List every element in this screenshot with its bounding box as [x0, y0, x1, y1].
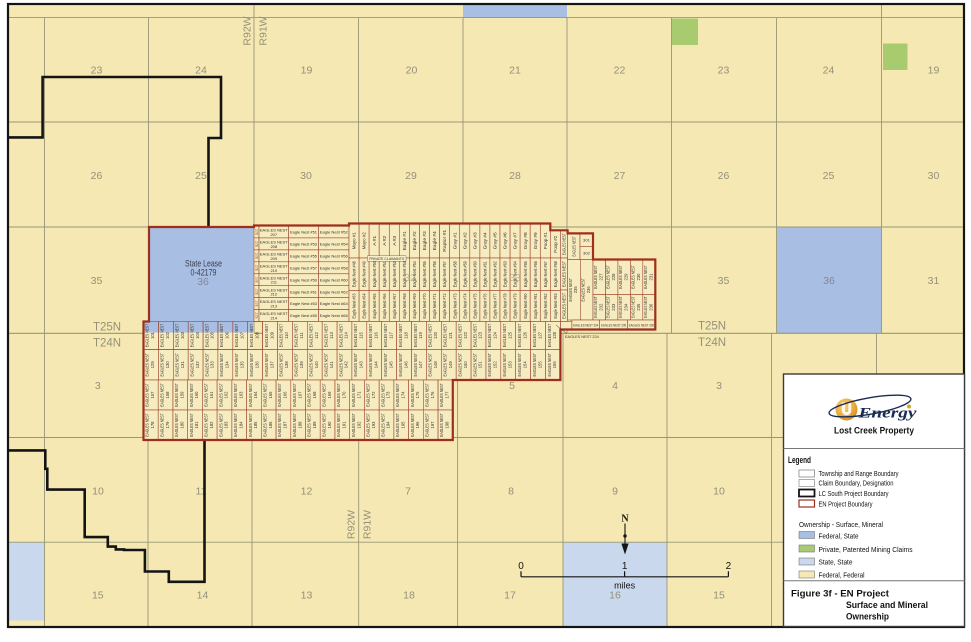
svg-text:EAGLES NEST: EAGLES NEST: [254, 301, 259, 307]
svg-text:EAGLES NEST: EAGLES NEST: [160, 323, 165, 347]
svg-text:110: 110: [284, 331, 289, 338]
svg-text:EAGLES NEST: EAGLES NEST: [264, 353, 269, 377]
svg-text:31: 31: [928, 275, 940, 287]
svg-text:211: 211: [271, 280, 278, 285]
svg-text:119: 119: [418, 331, 423, 338]
svg-text:123: 123: [478, 331, 483, 339]
svg-text:152: 152: [493, 361, 498, 369]
svg-text:182: 182: [209, 421, 214, 429]
svg-text:103: 103: [180, 331, 185, 339]
svg-text:235: 235: [573, 286, 578, 294]
svg-text:Eagle Nest #64: Eagle Nest #64: [362, 293, 367, 319]
svg-text:Eagle Nest #81: Eagle Nest #81: [533, 293, 538, 319]
svg-text:Eagle Nest #63: Eagle Nest #63: [290, 301, 318, 306]
svg-text:Eagle Nest #60: Eagle Nest #60: [320, 277, 349, 282]
svg-text:EAGLES NEST: EAGLES NEST: [307, 413, 312, 437]
svg-text:EAGLES NEST: EAGLES NEST: [254, 241, 259, 247]
svg-text:109: 109: [269, 331, 274, 339]
svg-text:Federal, Federal: Federal, Federal: [819, 573, 865, 580]
svg-text:177: 177: [445, 391, 450, 399]
svg-text:Township and Range Boundary: Township and Range Boundary: [819, 471, 899, 478]
svg-text:151: 151: [478, 361, 483, 369]
svg-text:Eagle Nest #68: Eagle Nest #68: [402, 293, 407, 319]
svg-text:EAGLES NEST 205: EAGLES NEST 205: [601, 322, 627, 327]
svg-text:Eagle Nest #65: Eagle Nest #65: [523, 261, 528, 288]
svg-text:22: 22: [614, 65, 626, 77]
svg-text:EAGLES NEST: EAGLES NEST: [338, 353, 343, 377]
svg-text:Eagle Nest #78: Eagle Nest #78: [503, 293, 508, 319]
svg-text:EAGLES NEST 206: EAGLES NEST 206: [629, 322, 655, 327]
svg-text:Eagle Nest #65: Eagle Nest #65: [290, 313, 318, 318]
svg-text:140: 140: [314, 361, 319, 369]
svg-text:EAGLES NEST: EAGLES NEST: [218, 383, 223, 407]
svg-text:Poop #1: Poop #1: [543, 232, 548, 250]
svg-text:R91W: R91W: [258, 16, 270, 45]
svg-text:Mayo #1: Mayo #1: [352, 232, 357, 250]
svg-text:EAGLES NEST: EAGLES NEST: [413, 323, 418, 347]
svg-text:190: 190: [327, 421, 332, 429]
svg-text:Eagle Nest #53: Eagle Nest #53: [290, 242, 318, 247]
svg-text:Eagle Nest #56: Eagle Nest #56: [432, 261, 437, 288]
svg-text:183: 183: [224, 421, 229, 429]
svg-text:EAGLES NEST: EAGLES NEST: [472, 323, 477, 347]
svg-text:Eagle Nest #49: Eagle Nest #49: [362, 261, 367, 288]
svg-text:EAGLES NEST: EAGLES NEST: [410, 383, 415, 407]
svg-text:EAGLES NEST: EAGLES NEST: [457, 323, 462, 347]
svg-text:234: 234: [623, 303, 628, 311]
svg-text:EAGLES NEST: EAGLES NEST: [630, 265, 635, 289]
svg-text:Eagle Nest #77: Eagle Nest #77: [493, 293, 498, 319]
svg-text:191: 191: [342, 421, 347, 429]
svg-text:115: 115: [359, 331, 364, 338]
svg-text:EAGLES NEST: EAGLES NEST: [457, 353, 462, 377]
svg-text:229: 229: [623, 273, 628, 281]
svg-text:114: 114: [344, 331, 349, 338]
svg-text:26: 26: [718, 170, 730, 182]
svg-text:EAGLES NEST: EAGLES NEST: [398, 353, 403, 377]
svg-text:Eagle Nest #51: Eagle Nest #51: [290, 230, 318, 235]
svg-text:EAGLES NEST: EAGLES NEST: [443, 323, 448, 347]
svg-text:126: 126: [522, 331, 527, 339]
svg-text:A #1: A #1: [372, 235, 377, 246]
svg-text:EAGLES NEST: EAGLES NEST: [428, 353, 433, 377]
svg-text:EAGLES NEST: EAGLES NEST: [219, 323, 224, 347]
svg-text:EAGLES NEST: EAGLES NEST: [189, 413, 194, 437]
svg-text:158: 158: [165, 391, 170, 399]
svg-text:167: 167: [297, 391, 302, 399]
svg-text:2: 2: [726, 561, 732, 572]
svg-text:128: 128: [552, 331, 557, 339]
svg-text:EAGLES NEST 204: EAGLES NEST 204: [573, 322, 599, 327]
svg-text:EAGLES NEST: EAGLES NEST: [189, 323, 194, 347]
svg-text:EAGLES NEST: EAGLES NEST: [309, 353, 314, 377]
svg-text:EAGLES NEST: EAGLES NEST: [292, 383, 297, 407]
svg-text:EAGLES NEST: EAGLES NEST: [413, 353, 418, 377]
svg-text:EAGLES NEST: EAGLES NEST: [174, 413, 179, 437]
svg-text:EAGLES NEST: EAGLES NEST: [159, 413, 164, 437]
svg-text:Eagle Nest #52: Eagle Nest #52: [320, 230, 349, 235]
svg-text:Eagle Nest #82: Eagle Nest #82: [543, 293, 548, 319]
svg-text:175: 175: [415, 391, 420, 399]
svg-text:EAGLES NEST: EAGLES NEST: [398, 323, 403, 347]
svg-text:Eagle Nest #52: Eagle Nest #52: [392, 261, 397, 288]
svg-text:EAGLES NEST: EAGLES NEST: [643, 296, 648, 318]
svg-text:Eagle Nest #83: Eagle Nest #83: [553, 293, 558, 319]
svg-text:Gray #9: Gray #9: [533, 232, 538, 250]
svg-text:116: 116: [374, 331, 379, 338]
svg-text:32: 32: [404, 272, 416, 284]
svg-text:EAGLES NEST: EAGLES NEST: [425, 383, 430, 407]
svg-text:209: 209: [270, 256, 277, 261]
svg-text:26: 26: [91, 170, 103, 182]
svg-text:134: 134: [225, 361, 230, 369]
svg-text:EAGLES NEST: EAGLES NEST: [571, 236, 576, 256]
svg-text:0: 0: [518, 561, 524, 572]
svg-text:207: 207: [270, 232, 277, 237]
svg-text:228: 228: [611, 273, 616, 281]
svg-text:T24N: T24N: [93, 338, 121, 350]
svg-text:Eagle Nest #80: Eagle Nest #80: [523, 293, 528, 319]
svg-text:19: 19: [301, 65, 313, 77]
svg-text:EAGLES NEST: EAGLES NEST: [254, 277, 259, 283]
svg-text:Gray #2: Gray #2: [462, 232, 467, 250]
svg-text:145: 145: [388, 361, 393, 369]
svg-text:Gray #3: Gray #3: [472, 232, 477, 250]
svg-text:EAGLES NEST: EAGLES NEST: [175, 353, 180, 377]
svg-text:Eagle Nest #60: Eagle Nest #60: [472, 261, 477, 288]
svg-text:12: 12: [301, 486, 313, 498]
svg-text:Eagle Nest #65: Eagle Nest #65: [372, 293, 377, 319]
svg-text:Eagle #2: Eagle #2: [412, 231, 417, 251]
svg-text:171: 171: [356, 391, 361, 399]
svg-text:EAGLES NEST: EAGLES NEST: [248, 383, 253, 407]
svg-text:EAGLES NEST: EAGLES NEST: [368, 323, 373, 347]
svg-text:154: 154: [522, 361, 527, 369]
svg-text:15: 15: [92, 590, 104, 602]
svg-text:194: 194: [386, 421, 391, 429]
svg-text:EAGLES NEST: EAGLES NEST: [517, 353, 522, 377]
svg-text:EAGLES NEST: EAGLES NEST: [439, 413, 444, 437]
svg-text:16: 16: [609, 590, 621, 602]
svg-text:153: 153: [508, 361, 513, 369]
svg-text:232: 232: [598, 303, 603, 311]
svg-text:146: 146: [403, 361, 408, 369]
svg-text:EAGLES NEST: EAGLES NEST: [294, 353, 299, 377]
svg-text:236: 236: [586, 286, 591, 294]
svg-text:EAGLES NEST: EAGLES NEST: [307, 383, 312, 407]
svg-text:137: 137: [269, 361, 274, 369]
svg-text:125: 125: [508, 331, 513, 339]
svg-text:Gray #4: Gray #4: [483, 232, 488, 250]
svg-text:212: 212: [270, 292, 277, 297]
svg-text:EAGLES NEST: EAGLES NEST: [580, 278, 585, 302]
svg-text:107: 107: [240, 331, 245, 339]
svg-text:143: 143: [359, 361, 364, 369]
svg-text:Eagle Nest #57: Eagle Nest #57: [290, 265, 318, 270]
svg-text:EAGLES NEST: EAGLES NEST: [443, 353, 448, 377]
svg-text:8: 8: [508, 486, 514, 498]
svg-text:184: 184: [238, 421, 243, 429]
svg-text:144: 144: [374, 361, 379, 369]
svg-text:EAGLES NEST: EAGLES NEST: [204, 413, 209, 437]
svg-text:187: 187: [283, 421, 288, 429]
svg-text:EN Project Boundary: EN Project Boundary: [819, 501, 873, 508]
svg-text:25: 25: [195, 170, 207, 182]
svg-text:Gray #1: Gray #1: [452, 232, 457, 250]
svg-text:27: 27: [614, 170, 626, 182]
svg-text:127: 127: [537, 331, 542, 339]
svg-text:Eagle Nest #69: Eagle Nest #69: [412, 293, 417, 319]
svg-text:230: 230: [636, 273, 641, 281]
svg-text:9: 9: [612, 486, 618, 498]
svg-text:301: 301: [583, 238, 591, 243]
svg-text:Ownership: Ownership: [846, 612, 889, 623]
svg-text:EAGLES NEST: EAGLES NEST: [254, 265, 259, 271]
svg-text:EAGLES NEST: EAGLES NEST: [204, 353, 209, 377]
svg-text:EAGLES NEST 224: EAGLES NEST 224: [565, 335, 599, 339]
svg-text:EAGLES NEST: EAGLES NEST: [472, 353, 477, 377]
svg-text:T25N: T25N: [698, 321, 726, 333]
svg-text:EAGLES NEST: EAGLES NEST: [338, 323, 343, 347]
svg-text:EAGLES NEST: EAGLES NEST: [218, 413, 223, 437]
svg-text:130: 130: [165, 361, 170, 369]
svg-text:EAGLES NEST: EAGLES NEST: [562, 261, 567, 287]
svg-text:23: 23: [91, 65, 103, 77]
svg-text:214: 214: [270, 316, 277, 321]
svg-text:Eagle Nest #59: Eagle Nest #59: [462, 261, 467, 288]
svg-text:24: 24: [195, 65, 207, 77]
svg-text:1: 1: [622, 561, 628, 572]
svg-text:Gray #6: Gray #6: [503, 232, 508, 250]
svg-text:Gray #5: Gray #5: [493, 232, 498, 250]
svg-text:R92W: R92W: [242, 16, 254, 45]
svg-text:EAGLES NEST: EAGLES NEST: [254, 289, 259, 295]
svg-text:231: 231: [648, 273, 653, 281]
svg-text:Eagle Nest #63: Eagle Nest #63: [352, 293, 357, 319]
svg-text:29: 29: [405, 170, 417, 182]
svg-text:R91W: R91W: [362, 510, 374, 539]
svg-text:EAGLES NEST: EAGLES NEST: [353, 353, 358, 377]
svg-text:35: 35: [718, 275, 730, 287]
svg-text:EAGLES NEST: EAGLES NEST: [562, 233, 567, 255]
svg-text:EAGLES NEST: EAGLES NEST: [145, 383, 150, 407]
svg-text:196: 196: [415, 421, 420, 429]
svg-text:208: 208: [270, 244, 277, 249]
svg-text:188: 188: [297, 421, 302, 429]
svg-text:Eagle Nest #66: Eagle Nest #66: [382, 293, 387, 319]
svg-text:Claim Boundary, Designation: Claim Boundary, Designation: [819, 481, 894, 488]
svg-text:Eagle Nest #76: Eagle Nest #76: [483, 293, 488, 319]
svg-text:A #2: A #2: [382, 235, 387, 246]
svg-text:3: 3: [716, 380, 722, 392]
svg-text:36: 36: [197, 276, 209, 288]
svg-text:EAGLES NEST: EAGLES NEST: [618, 296, 623, 318]
svg-text:EAGLES NEST: EAGLES NEST: [204, 383, 209, 407]
svg-text:233: 233: [611, 303, 616, 311]
svg-text:168: 168: [312, 391, 317, 399]
svg-text:7: 7: [405, 486, 411, 498]
svg-text:EAGLES NEST: EAGLES NEST: [568, 278, 573, 302]
svg-text:EAGLES NEST: EAGLES NEST: [233, 383, 238, 407]
svg-text:Eagle Nest #58: Eagle Nest #58: [452, 261, 457, 288]
svg-text:EAGLES NEST: EAGLES NEST: [351, 413, 356, 437]
svg-text:Gray #7: Gray #7: [513, 232, 518, 250]
svg-text:Eagle Nest #66: Eagle Nest #66: [320, 313, 349, 318]
svg-text:EAGLES NEST: EAGLES NEST: [487, 353, 492, 377]
svg-text:Federal, State: Federal, State: [819, 534, 859, 541]
svg-text:192: 192: [356, 421, 361, 429]
svg-text:Eagle Nest #75: Eagle Nest #75: [472, 293, 477, 319]
svg-text:Eagle Nest #68: Eagle Nest #68: [553, 261, 558, 288]
svg-text:Eagle #1: Eagle #1: [402, 231, 407, 251]
svg-text:EAGLES NEST: EAGLES NEST: [292, 413, 297, 437]
svg-text:147: 147: [418, 361, 423, 369]
svg-text:28: 28: [509, 170, 521, 182]
svg-text:Eagle #3: Eagle #3: [422, 231, 427, 251]
svg-text:EAGLES NEST: EAGLES NEST: [630, 296, 635, 318]
svg-text:T24N: T24N: [698, 337, 726, 349]
svg-text:EAGLES NEST: EAGLES NEST: [606, 296, 611, 318]
svg-text:EAGLES NEST: EAGLES NEST: [263, 383, 268, 407]
svg-text:EAGLES NEST: EAGLES NEST: [366, 383, 371, 407]
svg-text:EAGLES NEST: EAGLES NEST: [263, 413, 268, 437]
svg-text:197: 197: [430, 421, 435, 429]
svg-text:129: 129: [150, 361, 155, 369]
svg-text:33: 33: [509, 272, 521, 284]
svg-text:EAGLES NEST: EAGLES NEST: [368, 353, 373, 377]
svg-text:210: 210: [270, 268, 277, 273]
svg-text:EAGLES NEST: EAGLES NEST: [189, 353, 194, 377]
svg-text:EAGLES NEST: EAGLES NEST: [336, 383, 341, 407]
svg-text:236: 236: [648, 303, 653, 311]
svg-text:Eagle Nest #58: Eagle Nest #58: [320, 265, 349, 270]
svg-text:EAGLES NEST: EAGLES NEST: [219, 353, 224, 377]
svg-text:25: 25: [823, 170, 835, 182]
svg-text:N: N: [621, 514, 629, 525]
svg-text:EAGLES NEST: EAGLES NEST: [145, 323, 150, 347]
svg-text:4: 4: [612, 380, 618, 392]
svg-text:181: 181: [194, 421, 199, 429]
svg-text:Surface and Mineral: Surface and Mineral: [846, 600, 928, 611]
svg-text:138: 138: [284, 361, 289, 369]
svg-text:133: 133: [210, 361, 215, 369]
svg-text:EAGLES NEST: EAGLES NEST: [547, 323, 552, 347]
svg-text:A #3: A #3: [392, 235, 397, 246]
svg-text:195: 195: [400, 421, 405, 429]
svg-text:24: 24: [823, 65, 835, 77]
svg-text:15: 15: [713, 590, 725, 602]
svg-text:Eagle Nest #55: Eagle Nest #55: [290, 253, 318, 258]
svg-text:112: 112: [314, 331, 319, 338]
svg-text:EAGLES NEST: EAGLES NEST: [562, 292, 567, 318]
svg-text:132: 132: [195, 361, 200, 369]
svg-text:Eagle Nest #66: Eagle Nest #66: [533, 261, 538, 288]
svg-text:EAGLES NEST: EAGLES NEST: [233, 413, 238, 437]
svg-text:174: 174: [400, 391, 405, 399]
svg-text:EAGLES NEST: EAGLES NEST: [336, 413, 341, 437]
svg-text:EAGLES NEST: EAGLES NEST: [145, 353, 150, 377]
svg-text:121: 121: [448, 331, 453, 339]
svg-text:193: 193: [371, 421, 376, 429]
svg-text:Legend: Legend: [788, 455, 811, 465]
svg-text:EAGLES NEST: EAGLES NEST: [428, 323, 433, 347]
svg-text:miles: miles: [614, 581, 636, 591]
svg-text:35: 35: [91, 275, 103, 287]
svg-text:108: 108: [254, 331, 259, 339]
svg-text:Gray #8: Gray #8: [523, 232, 528, 250]
svg-text:EAGLES NEST: EAGLES NEST: [532, 353, 537, 377]
svg-text:36: 36: [823, 275, 835, 287]
svg-text:EAGLES NEST: EAGLES NEST: [366, 413, 371, 437]
svg-text:Mayo #2: Mayo #2: [362, 232, 367, 250]
svg-text:EAGLES NEST: EAGLES NEST: [395, 383, 400, 407]
svg-text:Lost Creek Property: Lost Creek Property: [834, 426, 915, 437]
svg-text:EAGLES NEST: EAGLES NEST: [248, 413, 253, 437]
svg-text:3: 3: [95, 380, 101, 392]
svg-text:14: 14: [197, 590, 209, 602]
svg-text:EAGLES NEST: EAGLES NEST: [606, 265, 611, 289]
svg-text:Eagle Nest #57: Eagle Nest #57: [442, 261, 447, 288]
svg-text:13: 13: [301, 590, 313, 602]
svg-text:111: 111: [299, 332, 304, 339]
svg-text:106: 106: [225, 331, 230, 339]
svg-text:Eagle Nest #62: Eagle Nest #62: [320, 289, 349, 294]
svg-text:136: 136: [254, 361, 259, 369]
svg-text:Eagle Nest #62: Eagle Nest #62: [493, 261, 498, 288]
svg-text:122: 122: [463, 331, 468, 339]
svg-text:EAGLES NEST: EAGLES NEST: [502, 353, 507, 377]
svg-text:Eagle Nest #56: Eagle Nest #56: [320, 253, 349, 258]
svg-text:Raptor #1: Raptor #1: [442, 229, 447, 252]
svg-text:155: 155: [537, 361, 542, 369]
svg-text:EAGLES NEST: EAGLES NEST: [234, 353, 239, 377]
svg-text:EAGLES NEST: EAGLES NEST: [351, 383, 356, 407]
svg-text:118: 118: [403, 331, 408, 338]
svg-text:EAGLES NEST: EAGLES NEST: [189, 383, 194, 407]
svg-text:23: 23: [718, 65, 730, 77]
svg-text:21: 21: [509, 65, 521, 77]
svg-text:LC South Project Boundary: LC South Project Boundary: [819, 491, 889, 498]
svg-text:Eagle Nest #73: Eagle Nest #73: [452, 293, 457, 319]
svg-text:30: 30: [300, 170, 312, 182]
svg-text:Eagle Nest #63: Eagle Nest #63: [503, 261, 508, 288]
svg-text:156: 156: [552, 361, 557, 369]
svg-text:20: 20: [406, 65, 418, 77]
svg-text:Eagle Nest #71: Eagle Nest #71: [432, 293, 437, 319]
svg-text:EAGLES NEST: EAGLES NEST: [487, 323, 492, 347]
svg-text:186: 186: [268, 421, 273, 429]
svg-text:EAGLES NEST: EAGLES NEST: [294, 323, 299, 347]
svg-text:135: 135: [240, 361, 245, 369]
svg-text:EAGLES NEST: EAGLES NEST: [323, 323, 328, 347]
svg-text:EAGLES NEST: EAGLES NEST: [425, 413, 430, 437]
svg-text:EAGLES NEST: EAGLES NEST: [254, 229, 259, 235]
svg-text:Eagle Nest #74: Eagle Nest #74: [462, 293, 467, 319]
svg-text:EAGLES NEST: EAGLES NEST: [532, 323, 537, 347]
svg-text:EAGLES NEST: EAGLES NEST: [321, 383, 326, 407]
svg-text:EAGLES NEST: EAGLES NEST: [174, 383, 179, 407]
svg-text:Eagle Nest #61: Eagle Nest #61: [483, 261, 488, 288]
svg-text:198: 198: [445, 421, 450, 429]
svg-text:163: 163: [238, 391, 243, 399]
svg-text:169: 169: [327, 391, 332, 399]
svg-text:T25N: T25N: [93, 322, 121, 334]
svg-text:Eagle Nest #48: Eagle Nest #48: [352, 261, 357, 288]
svg-text:178: 178: [150, 421, 155, 429]
svg-text:19: 19: [928, 65, 940, 77]
svg-text:Eagle Nest #50: Eagle Nest #50: [372, 261, 377, 288]
svg-text:Private, Patented Mining Claim: Private, Patented Mining Claims: [819, 547, 913, 554]
